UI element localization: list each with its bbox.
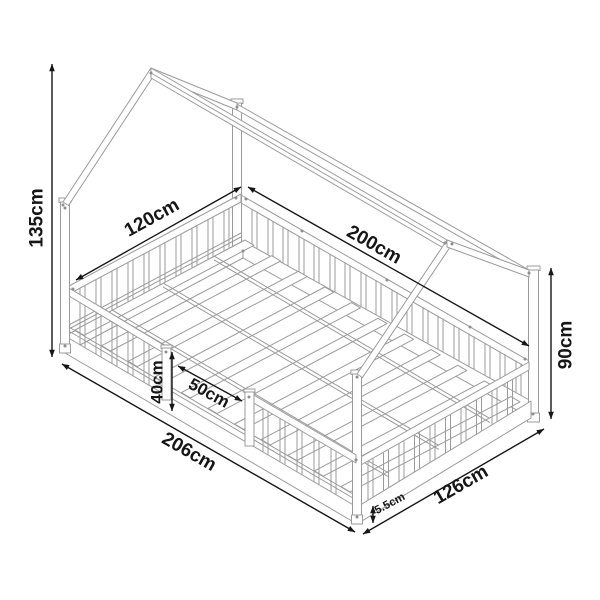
foot-left-post — [353, 374, 362, 524]
diagram-canvas: 135cm 120cm 200cm 90cm 40cm 50cm 206cm — [0, 0, 600, 600]
front-right-guard-stile — [245, 392, 254, 446]
dimension-label: 90cm — [556, 321, 577, 370]
head-left-post — [61, 202, 70, 353]
dimension-label: 135cm — [27, 188, 48, 247]
roof-gable-beam-foot-right — [447, 240, 529, 277]
dimension-label: 40cm — [148, 360, 167, 403]
roof-gable-beam-head-left — [63, 68, 157, 206]
bed-wireframe — [59, 68, 540, 524]
roof-gable-beam-head-right — [151, 68, 237, 110]
dimension-overall-height: 135cm — [27, 64, 53, 357]
dimension-side-post-height: 90cm — [551, 268, 577, 419]
house-bed-dimension-diagram: 135cm 120cm 200cm 90cm 40cm 50cm 206cm — [0, 0, 600, 600]
foot-right-post — [529, 270, 539, 422]
